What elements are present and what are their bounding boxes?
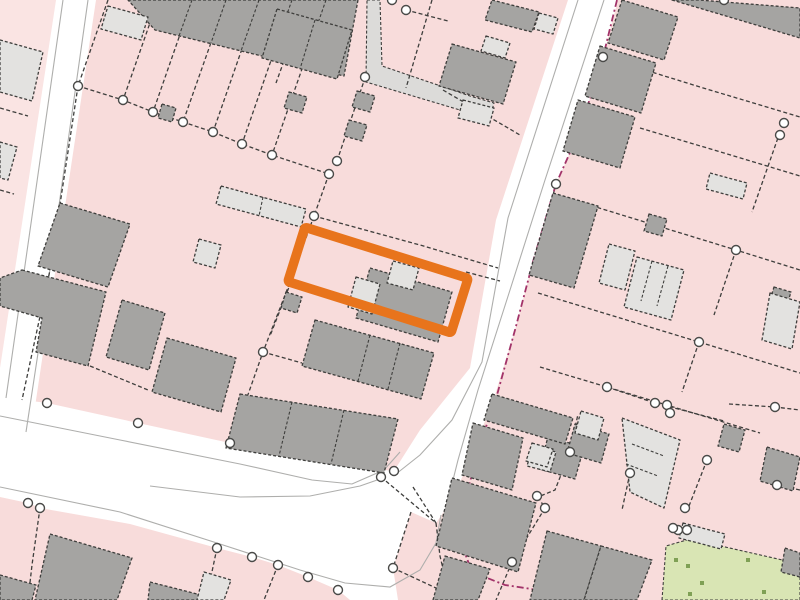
boundary-node — [248, 553, 257, 562]
boundary-node — [179, 118, 188, 127]
boundary-node — [310, 212, 319, 221]
boundary-node — [36, 504, 45, 513]
boundary-node — [390, 467, 399, 476]
vegetation-dot — [762, 590, 766, 594]
boundary-node — [24, 499, 33, 508]
boundary-node — [402, 6, 411, 15]
boundary-node — [226, 439, 235, 448]
boundary-node — [325, 170, 334, 179]
boundary-node — [238, 140, 247, 149]
vegetation-dot — [674, 558, 678, 562]
boundary-node — [361, 73, 370, 82]
boundary-node — [533, 492, 542, 501]
map-viewport — [0, 0, 800, 600]
boundary-node — [681, 504, 690, 513]
boundary-node — [541, 504, 550, 513]
boundary-node — [669, 524, 678, 533]
boundary-node — [149, 108, 158, 117]
boundary-node — [209, 128, 218, 137]
boundary-node — [695, 338, 704, 347]
boundary-node — [780, 119, 789, 128]
vegetation-dot — [686, 564, 690, 568]
boundary-node — [134, 419, 143, 428]
boundary-node — [268, 151, 277, 160]
boundary-node — [213, 544, 222, 553]
vegetation-dot — [700, 581, 704, 585]
building — [158, 104, 176, 122]
boundary-node — [74, 82, 83, 91]
boundary-node — [651, 399, 660, 408]
boundary-node — [732, 246, 741, 255]
boundary-node — [566, 448, 575, 457]
boundary-node — [703, 456, 712, 465]
boundary-node — [720, 0, 729, 5]
boundary-node — [776, 131, 785, 140]
boundary-node — [552, 180, 561, 189]
vegetation-dot — [688, 592, 692, 596]
boundary-node — [304, 573, 313, 582]
boundary-node — [333, 157, 342, 166]
boundary-node — [259, 348, 268, 357]
cadastral-map — [0, 0, 800, 600]
boundary-node — [119, 96, 128, 105]
boundary-node — [43, 399, 52, 408]
boundary-node — [603, 383, 612, 392]
boundary-node — [377, 473, 386, 482]
boundary-node — [683, 526, 692, 535]
boundary-node — [388, 0, 397, 5]
boundary-node — [626, 469, 635, 478]
boundary-node — [771, 403, 780, 412]
boundary-node — [599, 53, 608, 62]
boundary-node — [508, 558, 517, 567]
boundary-node — [666, 409, 675, 418]
boundary-node — [773, 481, 782, 490]
vegetation-dot — [746, 558, 750, 562]
boundary-node — [274, 561, 283, 570]
boundary-node — [334, 586, 343, 595]
boundary-node — [389, 564, 398, 573]
